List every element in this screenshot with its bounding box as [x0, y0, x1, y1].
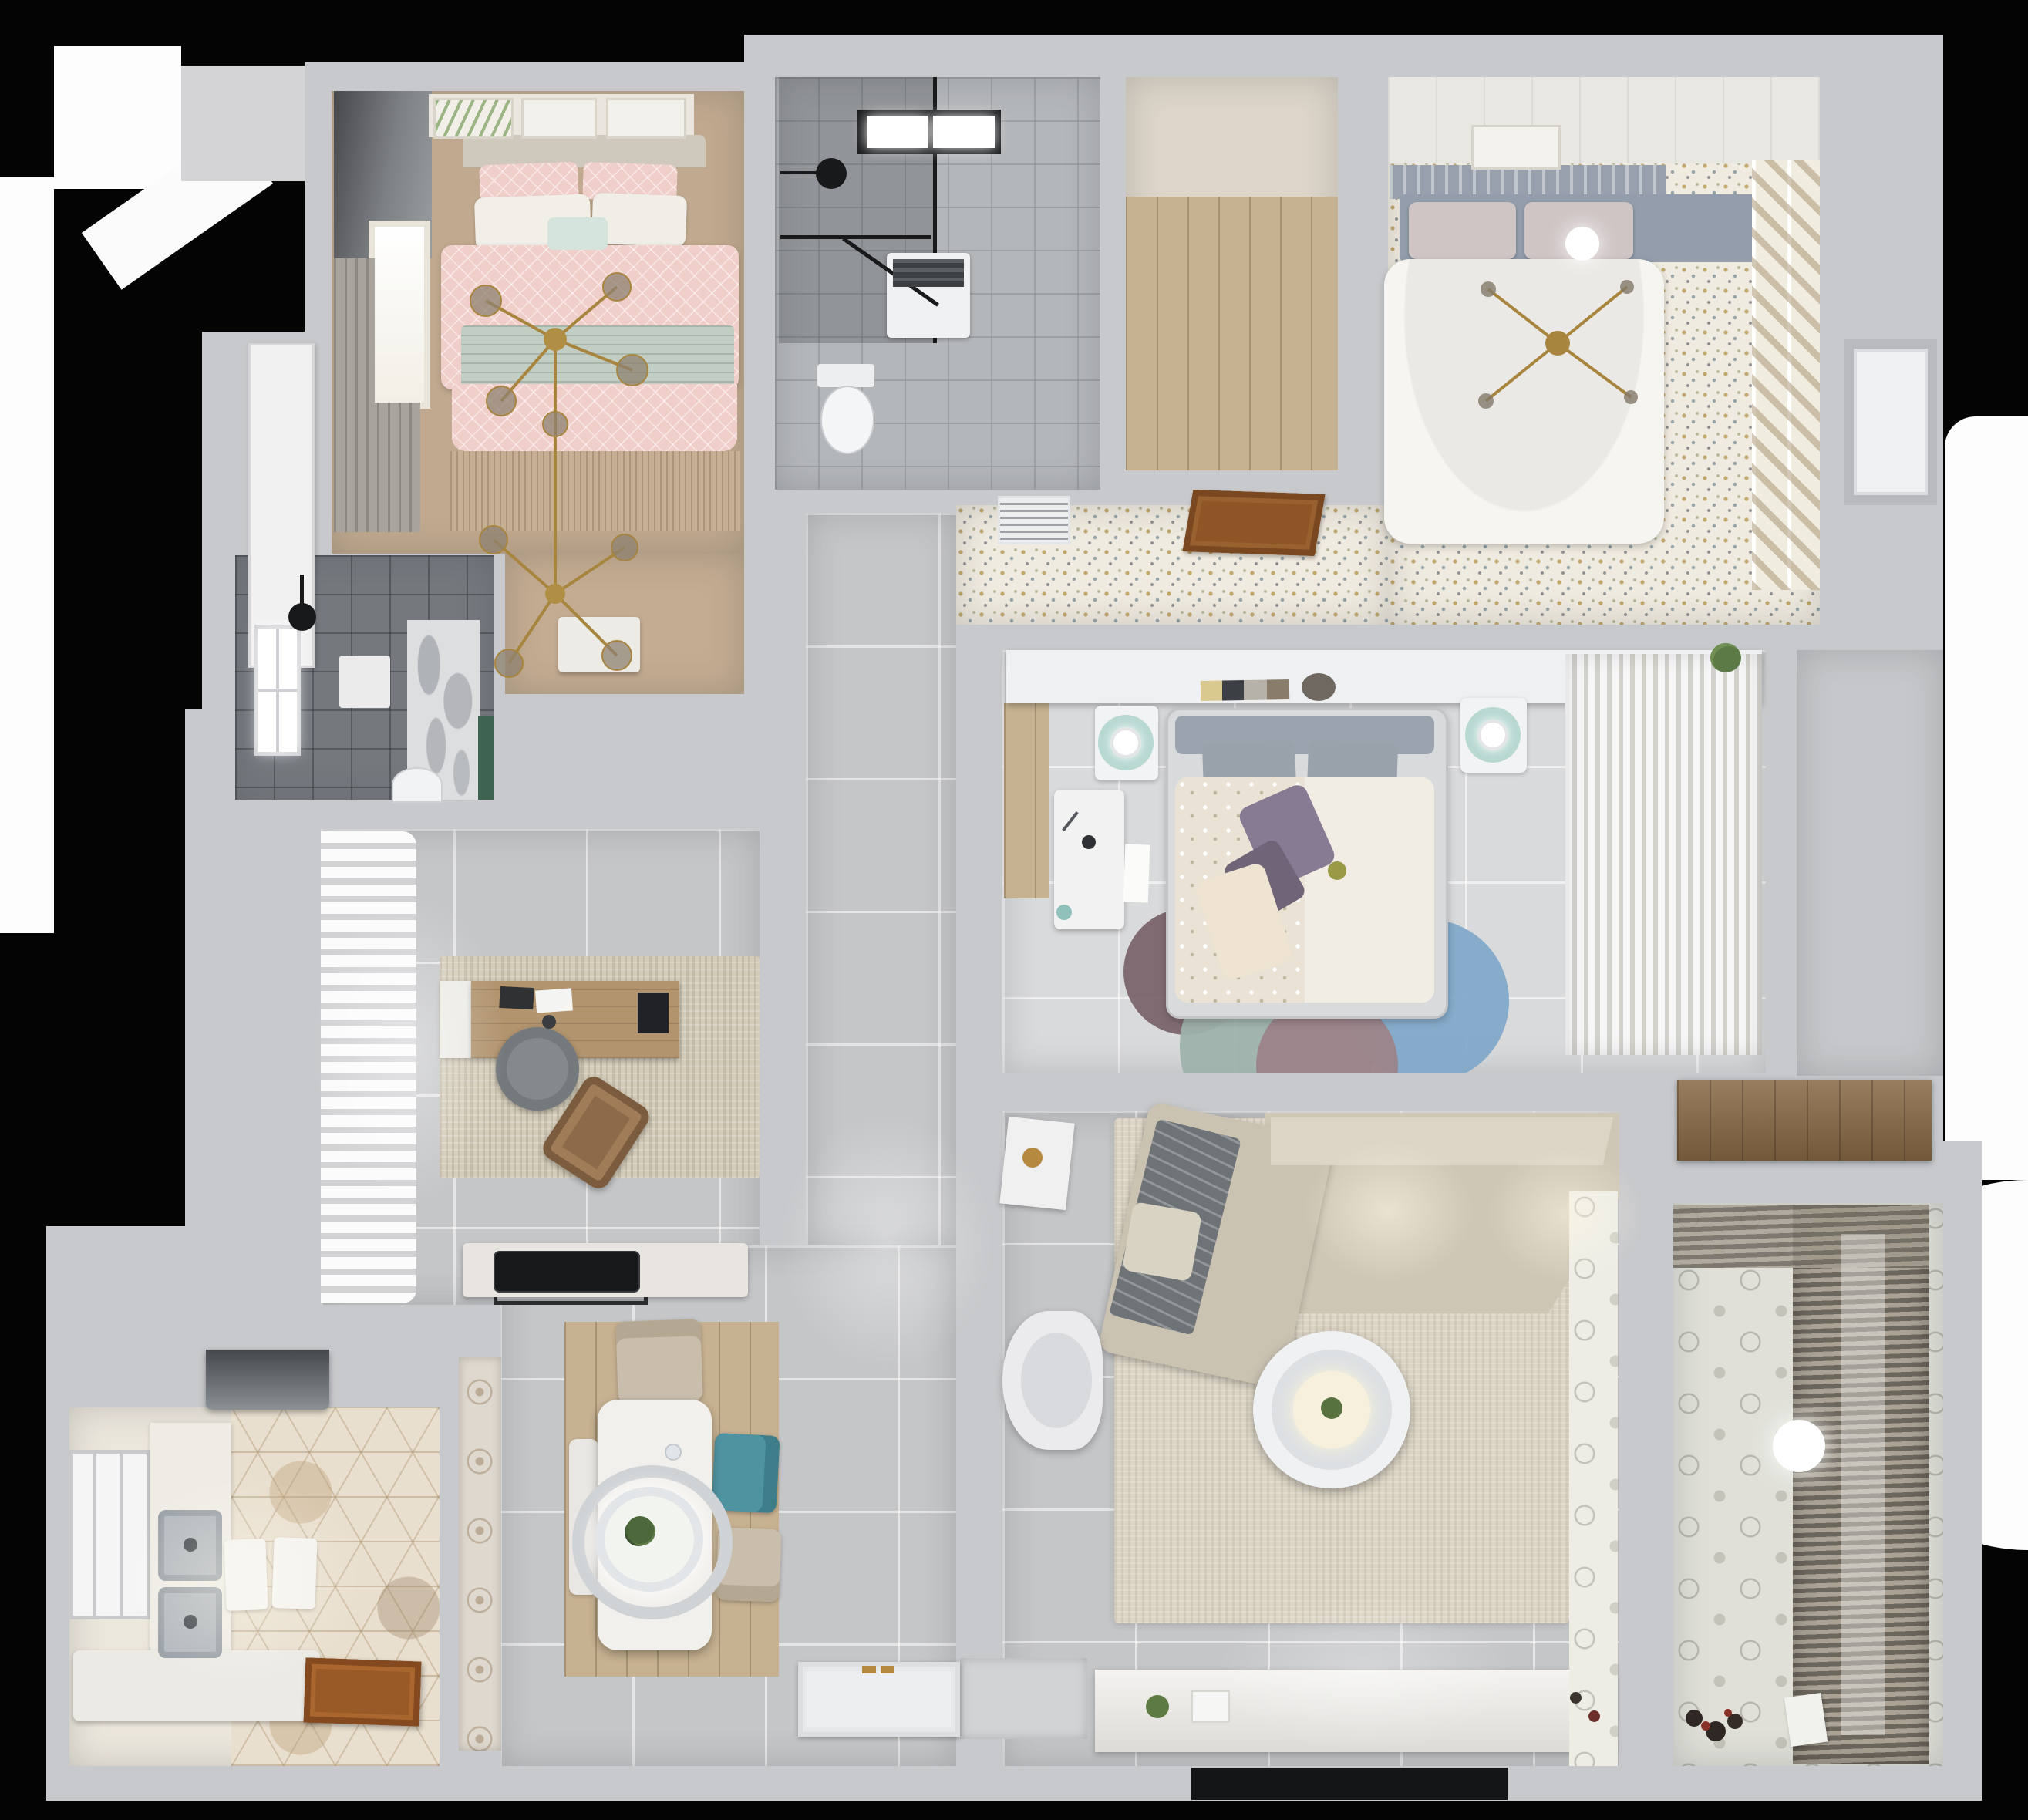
wood-strip-left: [1004, 703, 1049, 898]
blinds-top-rail: [1673, 1205, 1929, 1268]
toy-dark-1: [1686, 1710, 1703, 1727]
induction-hob: [494, 1251, 640, 1293]
tv-panel: [1191, 1768, 1508, 1800]
art-frame-script: [521, 98, 597, 139]
room-corridor: [806, 513, 956, 1245]
entry-door-leaf: [798, 1662, 960, 1737]
shower-head-icon: [816, 158, 847, 189]
cross-chandelier-icon: [1477, 278, 1639, 409]
chaise-pillow: [1122, 1202, 1202, 1282]
ceiling-lamp-glow: [1565, 227, 1599, 261]
pendant-plant: [626, 1516, 654, 1544]
window-glass: [375, 227, 424, 403]
pattern-shelf-strip: [459, 1357, 501, 1751]
room-storage-nook: [1797, 650, 1943, 1076]
shelf-books: [1201, 679, 1289, 701]
entry-threshold: [960, 1658, 1087, 1739]
kitchen-window: [69, 1450, 150, 1619]
coffee-table-plant: [1321, 1397, 1342, 1419]
pillow-mauve-left: [1409, 202, 1516, 259]
toy-red-1: [1701, 1721, 1710, 1731]
kitchen-open-door: [304, 1657, 422, 1726]
bed-headboard: [463, 135, 706, 167]
washer-panel: [893, 259, 964, 287]
bg-white-topleft: [54, 46, 181, 189]
shower-head-dark: [288, 603, 316, 631]
floorplan-render: { "meta": { "description": "Top-down 3D …: [0, 0, 2028, 1820]
art-frame-leaves: [433, 98, 514, 139]
shelf-plant: [1710, 643, 1741, 672]
duvet-plain-right: [1305, 777, 1434, 1003]
sofa-back-cushions: [1271, 1117, 1613, 1165]
armchair-seat: [1021, 1333, 1092, 1428]
door-white-right: [1854, 349, 1928, 495]
teal-cup: [1056, 905, 1072, 920]
shower-arm: [780, 171, 820, 174]
desk-dark-dot: [1082, 835, 1096, 849]
shower-glass-divider: [780, 235, 931, 239]
console-box: [1191, 1690, 1230, 1723]
side-table-kettle: [1022, 1148, 1043, 1168]
wood-sideboard: [1677, 1080, 1932, 1161]
console-plant: [1146, 1695, 1169, 1718]
kitchen-mat-2: [271, 1537, 317, 1609]
bathroom-window-panes: [258, 629, 297, 752]
skylight-pane-left: [867, 116, 928, 148]
art-frame-white-bedroom: [1471, 125, 1561, 170]
table-glass: [665, 1444, 682, 1461]
sink-drain-1: [184, 1538, 197, 1552]
wardrobe-hanging-clothes: [1565, 654, 1762, 1055]
kitchen-mat-1: [224, 1539, 268, 1611]
entry-door-hinge-1: [862, 1666, 876, 1673]
floor-paper: [1123, 844, 1150, 902]
papers: [535, 988, 573, 1013]
monitor: [638, 993, 669, 1033]
open-door-wood: [1182, 490, 1325, 556]
nightstand-left-lamp: [1110, 727, 1141, 758]
threshold-pattern-strip: [1569, 1191, 1618, 1766]
bath-shelf: [339, 656, 390, 708]
pillow-teal-accent: [547, 217, 608, 250]
toilet-guest: [392, 767, 443, 803]
console-knob-1: [1570, 1692, 1582, 1704]
mug: [542, 1015, 556, 1029]
range-hood: [206, 1350, 329, 1410]
toy-red-2: [1724, 1709, 1732, 1717]
ac-vent-grille: [998, 496, 1070, 544]
dining-chair-teal: [711, 1433, 780, 1513]
toilet-bowl: [820, 386, 874, 454]
toilet-tank: [817, 364, 874, 387]
tv-console: [1095, 1670, 1615, 1752]
laptop: [499, 986, 534, 1009]
closet-wood-floor: [1126, 197, 1338, 470]
branch-chandelier-icon: [440, 270, 663, 702]
slat-shelving-column: [1752, 160, 1820, 590]
kitchen-bottom-counter: [73, 1650, 320, 1721]
entry-door-hinge-2: [881, 1666, 894, 1673]
office-chair: [496, 1027, 579, 1111]
green-accent-strip: [478, 716, 494, 800]
sink-drain-2: [184, 1615, 197, 1629]
bg-white-left: [0, 177, 54, 933]
blinds-sheen: [1841, 1234, 1885, 1735]
desk-return-white: [440, 981, 471, 1058]
balcony-papers: [1784, 1693, 1828, 1747]
shelf-bowl: [1302, 673, 1336, 701]
nightstand-right-lamp: [1477, 720, 1508, 750]
shower-pipe: [300, 575, 304, 605]
balcony-ceiling-lamp: [1773, 1420, 1825, 1472]
paneled-wall-strip: [1388, 77, 1820, 163]
skylight-pane-right: [933, 116, 995, 148]
art-frame-botanical: [606, 98, 686, 139]
duvet-green-dot: [1328, 861, 1346, 880]
dining-chair-top: [615, 1319, 703, 1404]
bg-white-right: [1945, 416, 2028, 1180]
curtain-wall: [321, 831, 416, 1303]
console-knob-2: [1588, 1710, 1600, 1722]
